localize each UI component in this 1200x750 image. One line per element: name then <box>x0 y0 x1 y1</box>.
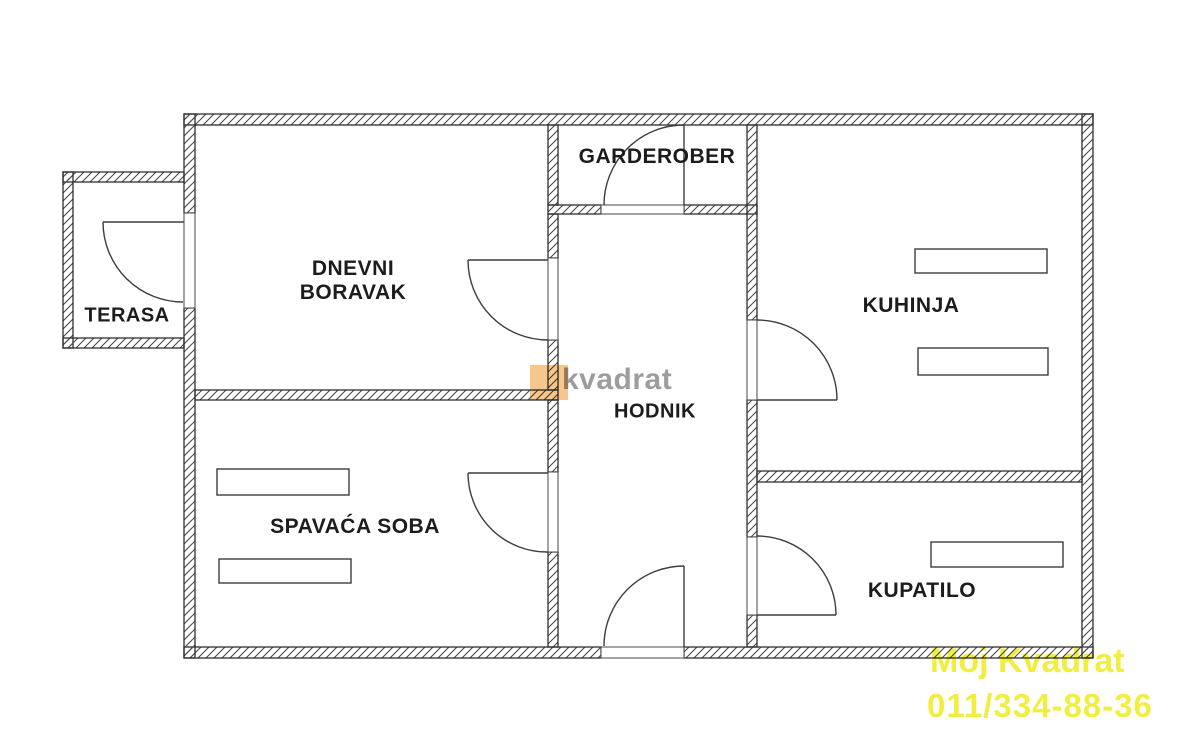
door-bathroom <box>757 536 836 615</box>
furniture-kitchen-counter-2 <box>918 348 1048 375</box>
wall-outer-top <box>184 114 1093 125</box>
furniture-bedroom-1 <box>217 469 349 495</box>
wall-hallway-left-c <box>548 400 558 472</box>
door-kitchen <box>757 320 837 400</box>
opening-bathroom <box>747 537 757 615</box>
wall-outer-left-upper <box>184 114 195 213</box>
wall-wardrobe-left <box>548 125 558 205</box>
wall-outer-bottom-left <box>184 647 601 658</box>
kvadrat-logo-text: kvadrat <box>562 363 672 397</box>
furniture-bedroom-2 <box>219 559 351 583</box>
room-label-kitchen: KUHINJA <box>863 294 960 318</box>
wall-terrace-bottom <box>63 338 184 348</box>
wall-hallway-left-a <box>548 214 558 258</box>
room-label-terrace: TERASA <box>84 305 169 328</box>
furniture-kitchen-counter-1 <box>915 249 1047 273</box>
opening-kitchen <box>747 320 757 400</box>
agency-phone: 011/334-88-36 <box>927 689 1153 722</box>
floor-plan-screenshot: TERASA DNEVNI BORAVAK GARDEROBER KUHINJA… <box>0 0 1200 750</box>
wall-terrace-top <box>63 172 184 182</box>
room-label-bathroom: KUPATILO <box>868 579 976 603</box>
room-label-living-line1: DNEVNI <box>300 257 407 281</box>
opening-terrace <box>184 213 195 308</box>
door-living-room <box>468 260 548 340</box>
opening-living-room <box>548 258 558 340</box>
furniture-bathroom <box>931 542 1063 567</box>
door-terrace <box>103 222 184 302</box>
wall-kitchen-bathroom-divider <box>757 471 1082 482</box>
wall-outer-right <box>1082 114 1093 658</box>
wall-terrace-left <box>63 172 73 348</box>
opening-entrance <box>601 647 684 658</box>
wall-wardrobe-bottom-left <box>548 205 601 214</box>
room-label-wardrobe: GARDEROBER <box>579 145 736 169</box>
agency-watermark: Moj Kvadrat 011/334-88-36 <box>927 644 1153 722</box>
door-bedroom <box>468 473 548 552</box>
room-label-hallway: HODNIK <box>614 401 696 424</box>
opening-wardrobe <box>601 205 684 214</box>
door-entrance <box>604 566 684 647</box>
wall-hallway-right-a <box>747 125 757 320</box>
wall-hallway-right-c <box>747 615 757 647</box>
room-label-living-line2: BORAVAK <box>300 281 407 305</box>
room-label-bedroom: SPAVAĆA SOBA <box>270 515 440 539</box>
wall-hallway-left-d <box>548 552 558 647</box>
wall-outer-left-lower <box>184 308 195 658</box>
wall-hallway-right-b <box>747 400 757 537</box>
wall-wardrobe-bottom-right <box>684 205 757 214</box>
room-label-living-room: DNEVNI BORAVAK <box>300 257 407 305</box>
wall-living-bedroom-divider <box>195 390 558 400</box>
agency-name: Moj Kvadrat <box>930 644 1153 678</box>
opening-bedroom <box>548 472 558 552</box>
